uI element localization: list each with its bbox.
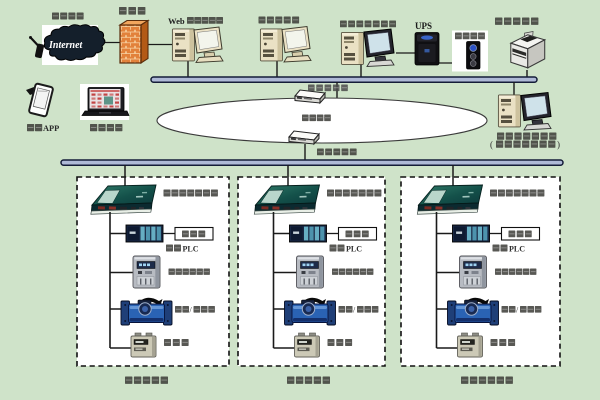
svg-text:PLC: PLC: [346, 245, 362, 254]
svg-text:UPS: UPS: [415, 21, 432, 31]
svg-text:Web: Web: [168, 16, 185, 26]
svg-text:PLC: PLC: [183, 245, 199, 254]
svg-text:): ): [557, 140, 560, 150]
svg-text:PLC: PLC: [509, 245, 525, 254]
svg-text:Internet: Internet: [48, 40, 84, 51]
svg-text:(: (: [490, 140, 493, 150]
svg-text:APP: APP: [43, 124, 59, 133]
